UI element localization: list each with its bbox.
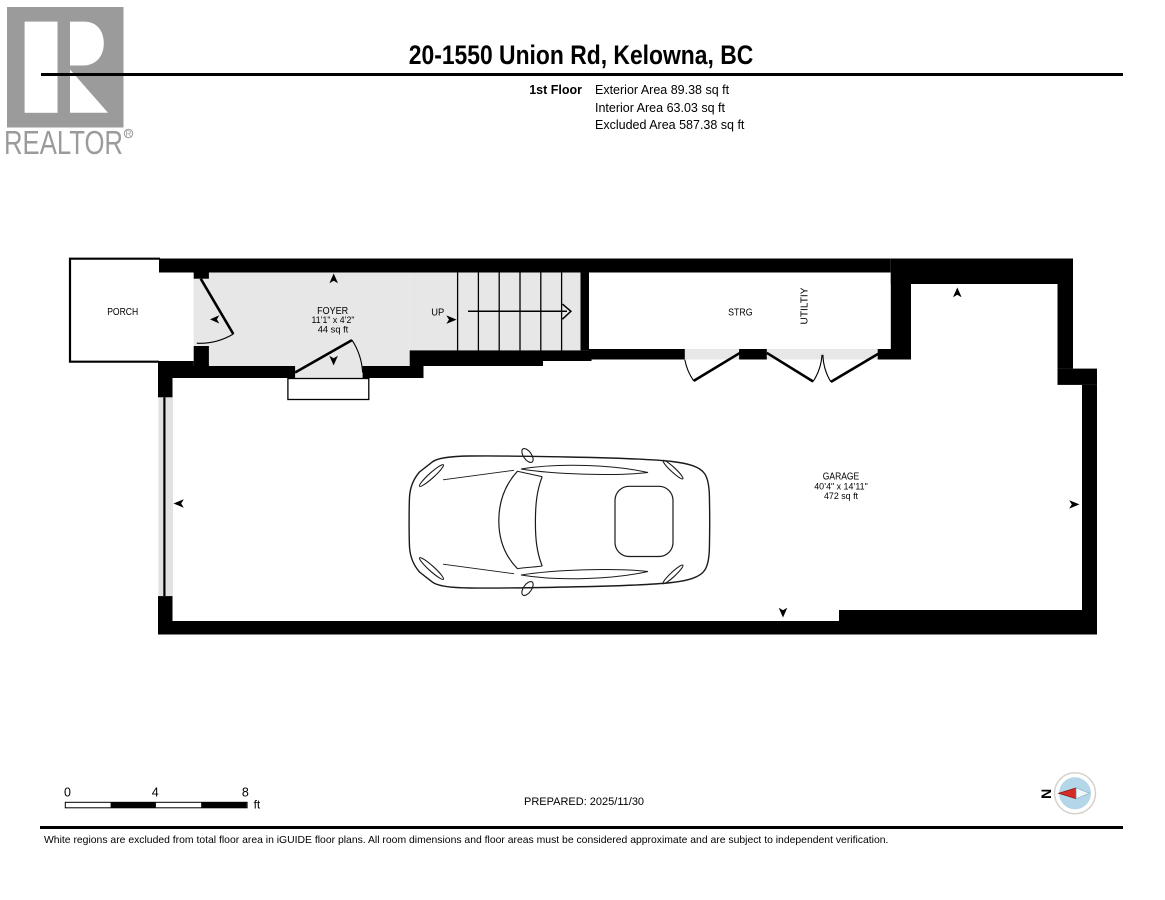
svg-text:20-1550 Union Rd, Kelowna, BC: 20-1550 Union Rd, Kelowna, BC: [409, 40, 754, 70]
svg-text:STRG: STRG: [728, 306, 753, 318]
svg-text:8: 8: [242, 786, 249, 800]
svg-text:N: N: [1038, 789, 1054, 799]
svg-text:4: 4: [152, 786, 159, 800]
svg-text:472 sq ft: 472 sq ft: [824, 491, 858, 502]
svg-text:ft: ft: [254, 798, 261, 812]
svg-text:UTILTIY: UTILTIY: [799, 288, 811, 325]
svg-text:PORCH: PORCH: [107, 306, 138, 318]
svg-text:44 sq ft: 44 sq ft: [318, 325, 349, 336]
svg-text:0: 0: [64, 786, 71, 800]
svg-text:UP: UP: [431, 306, 444, 318]
